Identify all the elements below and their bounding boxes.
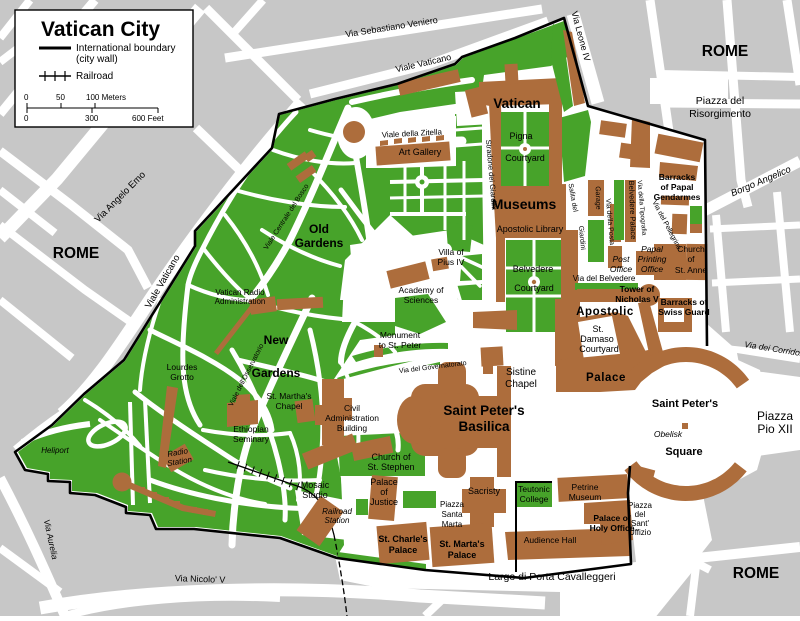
svg-text:Monument: Monument bbox=[380, 330, 421, 340]
svg-text:Barracks of: Barracks of bbox=[661, 297, 708, 307]
svg-text:ROME: ROME bbox=[733, 565, 780, 582]
svg-text:Station: Station bbox=[325, 516, 350, 525]
svg-text:St. Marta's: St. Marta's bbox=[439, 539, 484, 549]
svg-text:Courtyard: Courtyard bbox=[514, 283, 554, 293]
svg-text:Sistine: Sistine bbox=[506, 367, 536, 378]
svg-text:Apostolic Library: Apostolic Library bbox=[497, 224, 564, 234]
svg-text:Tower of: Tower of bbox=[620, 284, 655, 294]
svg-text:Mosaic: Mosaic bbox=[301, 480, 330, 490]
svg-text:Seminary: Seminary bbox=[233, 434, 270, 444]
svg-text:of Papal: of Papal bbox=[660, 182, 693, 192]
svg-text:Piazza: Piazza bbox=[628, 501, 653, 510]
svg-text:Sacristy: Sacristy bbox=[468, 486, 501, 496]
svg-text:Art Gallery: Art Gallery bbox=[399, 147, 442, 157]
svg-text:Office: Office bbox=[610, 264, 632, 274]
svg-text:Vatican City: Vatican City bbox=[41, 18, 160, 41]
svg-text:Obelisk: Obelisk bbox=[654, 429, 683, 439]
svg-text:Nicholas V: Nicholas V bbox=[615, 294, 659, 304]
svg-text:Railroad: Railroad bbox=[322, 507, 352, 516]
svg-text:Piazza: Piazza bbox=[440, 500, 465, 509]
svg-text:Via Nicolo' V: Via Nicolo' V bbox=[175, 573, 226, 585]
svg-text:Gendarmes: Gendarmes bbox=[654, 192, 701, 202]
svg-text:Old: Old bbox=[309, 222, 329, 236]
svg-text:Gardens: Gardens bbox=[252, 366, 301, 380]
svg-text:Civil: Civil bbox=[344, 403, 360, 413]
svg-text:Chapel: Chapel bbox=[505, 379, 537, 390]
svg-text:of: of bbox=[687, 254, 695, 264]
svg-text:Santa: Santa bbox=[442, 510, 463, 519]
svg-text:Marta: Marta bbox=[442, 520, 463, 529]
svg-text:0: 0 bbox=[24, 114, 29, 123]
svg-text:Heliport: Heliport bbox=[41, 446, 69, 455]
svg-text:Villa of: Villa of bbox=[438, 247, 464, 257]
svg-text:Pio XII: Pio XII bbox=[757, 422, 792, 436]
svg-text:St. Stephen: St. Stephen bbox=[367, 462, 414, 472]
svg-text:Ethiopian: Ethiopian bbox=[233, 424, 269, 434]
svg-text:Administration: Administration bbox=[215, 297, 266, 306]
svg-text:Piazza: Piazza bbox=[757, 409, 793, 423]
svg-text:ROME: ROME bbox=[702, 43, 749, 60]
svg-text:Printing: Printing bbox=[638, 254, 667, 264]
svg-text:300: 300 bbox=[85, 114, 99, 123]
svg-text:Palace: Palace bbox=[370, 477, 398, 487]
svg-text:Garage: Garage bbox=[594, 186, 602, 210]
svg-text:International boundary: International boundary bbox=[76, 43, 176, 54]
svg-text:Swiss Guard: Swiss Guard bbox=[658, 307, 710, 317]
svg-text:Barracks: Barracks bbox=[659, 172, 696, 182]
svg-text:Via del Belvedere: Via del Belvedere bbox=[573, 274, 636, 283]
svg-text:Studio: Studio bbox=[302, 490, 328, 500]
svg-text:ROME: ROME bbox=[53, 245, 100, 262]
svg-text:Saint Peter's: Saint Peter's bbox=[652, 398, 718, 410]
svg-text:Palace of: Palace of bbox=[593, 513, 630, 523]
svg-text:Courtyard: Courtyard bbox=[505, 153, 545, 163]
svg-text:Pius IV: Pius IV bbox=[438, 257, 465, 267]
svg-text:Office: Office bbox=[641, 264, 663, 274]
svg-text:Railroad: Railroad bbox=[76, 71, 113, 82]
svg-text:0: 0 bbox=[24, 93, 29, 102]
svg-text:New: New bbox=[264, 333, 289, 347]
svg-text:St. Charle's: St. Charle's bbox=[378, 534, 427, 544]
svg-text:Apostolic: Apostolic bbox=[576, 306, 634, 318]
svg-text:Museums: Museums bbox=[492, 196, 557, 212]
svg-text:Audience Hall: Audience Hall bbox=[524, 535, 577, 545]
svg-text:Justice: Justice bbox=[370, 497, 398, 507]
svg-text:100 Meters: 100 Meters bbox=[86, 93, 126, 102]
svg-text:Museum: Museum bbox=[569, 492, 602, 502]
svg-text:St. Martha's: St. Martha's bbox=[266, 391, 311, 401]
svg-text:Post: Post bbox=[612, 254, 630, 264]
svg-text:Risorgimento: Risorgimento bbox=[689, 108, 751, 120]
svg-text:Holy Office: Holy Office bbox=[590, 523, 635, 533]
svg-text:Basilica: Basilica bbox=[458, 419, 510, 434]
svg-text:College: College bbox=[520, 494, 549, 504]
svg-text:Belvedere: Belvedere bbox=[513, 264, 554, 274]
svg-text:Church of: Church of bbox=[371, 452, 411, 462]
svg-text:Pigna: Pigna bbox=[509, 131, 532, 141]
svg-text:Damaso: Damaso bbox=[580, 334, 614, 344]
svg-text:Chapel: Chapel bbox=[276, 401, 303, 411]
svg-text:Vatican Radio: Vatican Radio bbox=[215, 288, 265, 297]
svg-text:to St. Peter: to St. Peter bbox=[379, 340, 422, 350]
svg-text:Gardens: Gardens bbox=[295, 236, 344, 250]
svg-text:Petrine: Petrine bbox=[572, 482, 599, 492]
svg-text:Palace: Palace bbox=[448, 550, 477, 560]
svg-text:Sciences: Sciences bbox=[404, 295, 439, 305]
svg-text:50: 50 bbox=[56, 93, 65, 102]
svg-text:600 Feet: 600 Feet bbox=[132, 114, 164, 123]
svg-text:del: del bbox=[635, 510, 646, 519]
svg-text:Saint Peter's: Saint Peter's bbox=[443, 403, 524, 418]
svg-text:of: of bbox=[380, 487, 388, 497]
svg-text:Building: Building bbox=[337, 423, 368, 433]
svg-text:Papal: Papal bbox=[641, 244, 664, 254]
svg-text:St. Anne: St. Anne bbox=[675, 265, 707, 275]
svg-text:Vatican: Vatican bbox=[493, 96, 540, 111]
svg-text:Academy of: Academy of bbox=[399, 285, 445, 295]
svg-text:Palace: Palace bbox=[389, 545, 418, 555]
svg-text:Palace: Palace bbox=[586, 372, 626, 384]
svg-text:Church: Church bbox=[677, 244, 705, 254]
svg-text:(city wall): (city wall) bbox=[76, 54, 118, 65]
svg-text:St.: St. bbox=[592, 324, 603, 334]
svg-text:Courtyard: Courtyard bbox=[579, 344, 619, 354]
svg-text:Piazza del: Piazza del bbox=[696, 95, 744, 107]
svg-text:Grotto: Grotto bbox=[170, 372, 194, 382]
svg-text:Lourdes: Lourdes bbox=[167, 362, 198, 372]
svg-text:Largo di Porta Cavalleggeri: Largo di Porta Cavalleggeri bbox=[488, 571, 615, 583]
svg-text:Teutonic: Teutonic bbox=[518, 484, 550, 494]
svg-text:Square: Square bbox=[665, 446, 702, 458]
svg-text:Administration: Administration bbox=[325, 413, 379, 423]
